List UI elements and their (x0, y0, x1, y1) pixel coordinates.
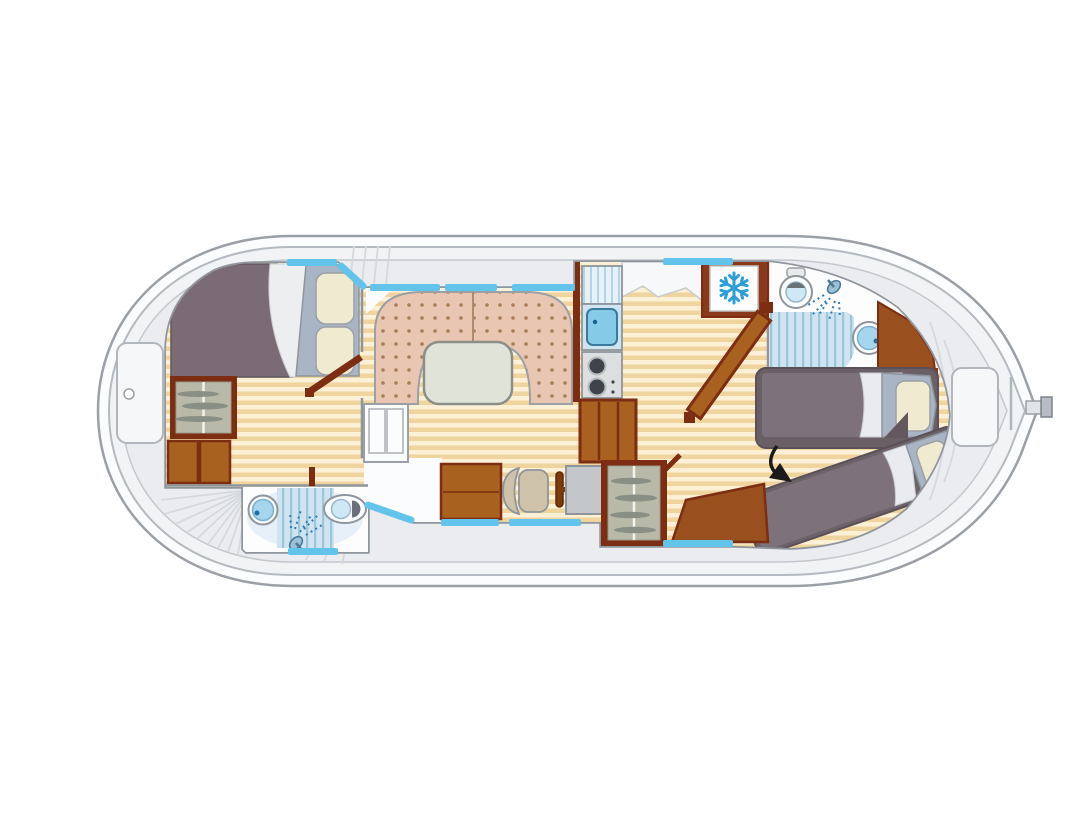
door-jamb (684, 412, 695, 423)
window (288, 548, 338, 555)
refrigerator (702, 260, 768, 317)
window (509, 519, 581, 526)
helm-console (566, 466, 602, 514)
window (441, 519, 499, 526)
front-wardrobe (170, 376, 237, 439)
cabin-door-hinge (305, 388, 314, 397)
single-bed (756, 368, 938, 448)
storage-cabinet (168, 441, 198, 483)
dining-table (424, 342, 512, 404)
rudder-cap (1041, 397, 1052, 417)
shower-area (770, 312, 854, 369)
draining-board (582, 266, 622, 304)
window (512, 284, 575, 291)
window (663, 540, 733, 547)
helm-seat (519, 470, 548, 512)
shower-area (277, 488, 334, 548)
window (663, 258, 733, 265)
window (370, 284, 440, 291)
bathroom-door-stub (309, 467, 315, 486)
window (445, 284, 497, 291)
galley-steps (580, 400, 636, 462)
galley-sink (582, 304, 622, 350)
companionway-steps (364, 404, 408, 462)
washbasin (249, 496, 278, 525)
rudder-tiller (1026, 401, 1042, 414)
boat-floor-plan (0, 0, 1092, 819)
toilet (324, 495, 366, 523)
window (287, 259, 337, 266)
door-jamb (760, 302, 773, 313)
bow-hatch-handle (124, 389, 134, 399)
pillow (316, 273, 354, 324)
boat-floor-plan-canvas (0, 0, 1092, 819)
two-burner-stove (582, 352, 622, 398)
storage-cabinet (200, 441, 230, 483)
stern-hatch (952, 368, 998, 446)
